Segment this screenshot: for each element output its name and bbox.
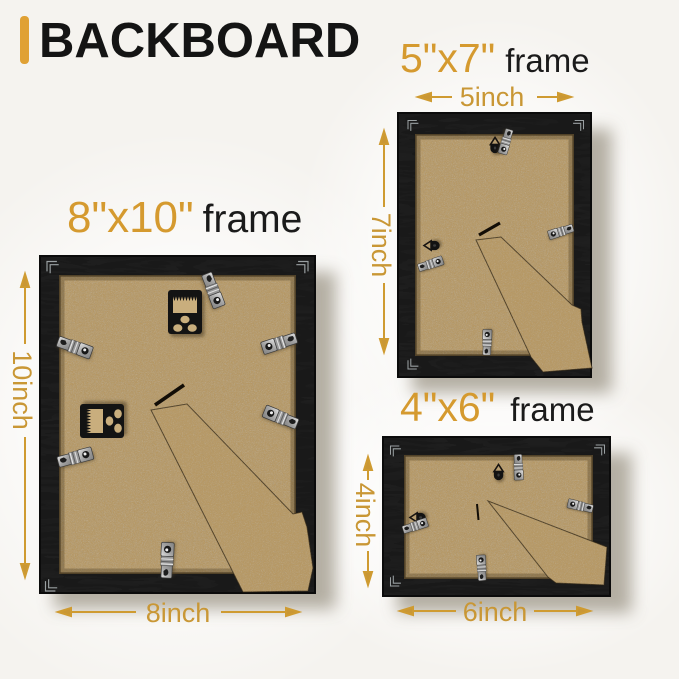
svg-text:5"x7"frame: 5"x7"frame [400, 35, 590, 81]
svg-text:5inch: 5inch [460, 82, 525, 112]
svg-text:4inch: 4inch [350, 483, 380, 548]
svg-text:10inch: 10inch [7, 350, 37, 430]
svg-text:6inch: 6inch [463, 597, 528, 627]
svg-text:7inch: 7inch [366, 213, 396, 278]
svg-text:8"x10"frame: 8"x10"frame [67, 193, 302, 242]
svg-text:BACKBOARD: BACKBOARD [39, 14, 360, 68]
svg-text:8inch: 8inch [146, 598, 211, 628]
